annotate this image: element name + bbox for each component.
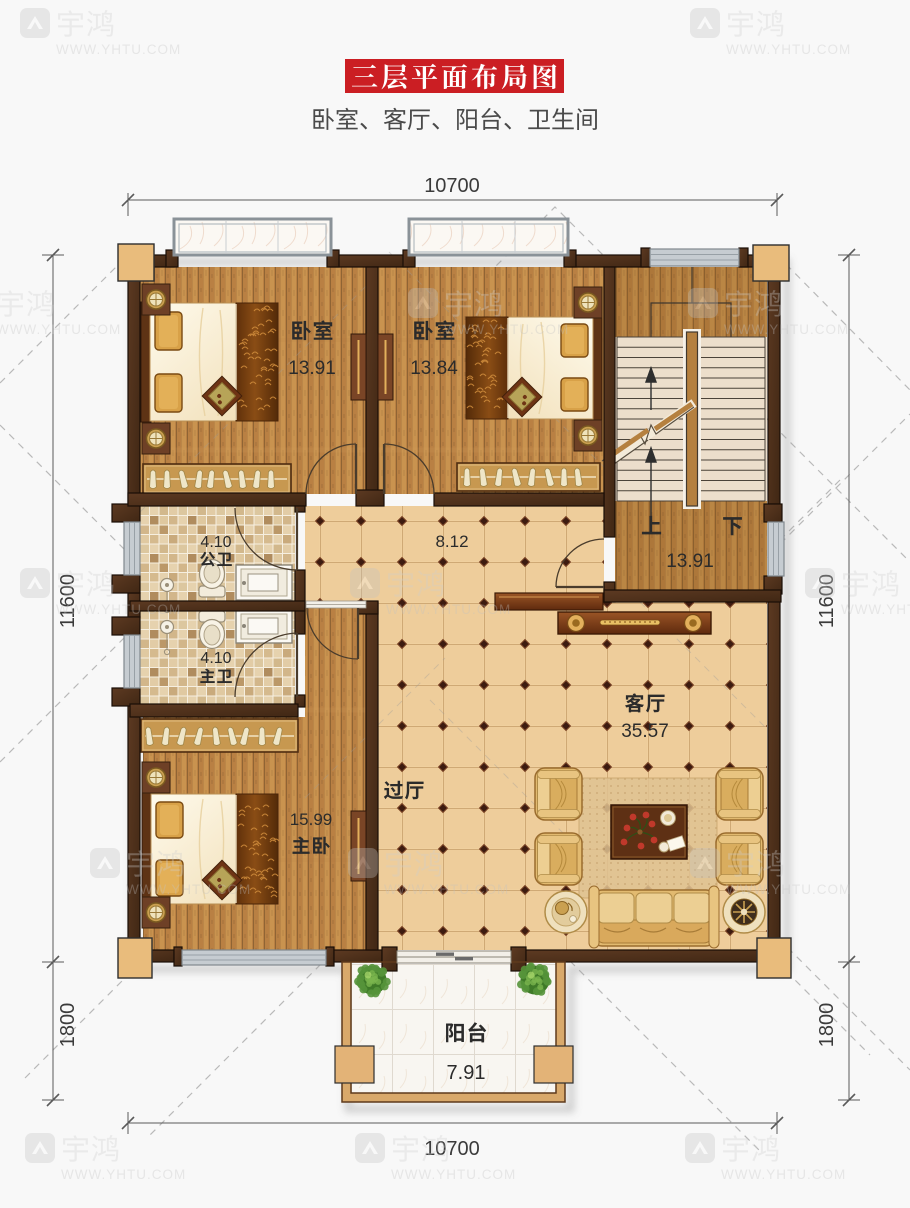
svg-text:WWW.YHTU.COM: WWW.YHTU.COM [444, 322, 569, 337]
svg-text:4.10: 4.10 [200, 534, 231, 551]
svg-text:WWW.YHTU.COM: WWW.YHTU.COM [841, 602, 910, 617]
svg-text:WWW.YHTU.COM: WWW.YHTU.COM [721, 1167, 846, 1182]
svg-text:WWW.YHTU.COM: WWW.YHTU.COM [391, 1167, 516, 1182]
svg-text:10700: 10700 [424, 175, 480, 197]
svg-text:1800: 1800 [57, 1003, 79, 1048]
svg-text:WWW.YHTU.COM: WWW.YHTU.COM [56, 42, 181, 57]
svg-text:WWW.YHTU.COM: WWW.YHTU.COM [384, 882, 509, 897]
svg-text:WWW.YHTU.COM: WWW.YHTU.COM [126, 882, 251, 897]
svg-text:1800: 1800 [816, 1003, 838, 1048]
svg-text:4.10: 4.10 [200, 650, 231, 667]
svg-text:WWW.YHTU.COM: WWW.YHTU.COM [724, 322, 849, 337]
svg-text:13.91: 13.91 [288, 358, 336, 379]
svg-text:WWW.YHTU.COM: WWW.YHTU.COM [726, 42, 851, 57]
svg-text:7.91: 7.91 [447, 1062, 486, 1084]
svg-text:15.99: 15.99 [290, 810, 333, 829]
svg-text:WWW.YHTU.COM: WWW.YHTU.COM [726, 882, 851, 897]
svg-text:13.84: 13.84 [410, 358, 458, 379]
svg-text:11600: 11600 [57, 574, 79, 628]
svg-text:8.12: 8.12 [435, 532, 468, 551]
svg-text:WWW.YHTU.COM: WWW.YHTU.COM [0, 322, 121, 337]
svg-text:13.91: 13.91 [666, 551, 714, 572]
svg-text:WWW.YHTU.COM: WWW.YHTU.COM [56, 602, 181, 617]
svg-text:WWW.YHTU.COM: WWW.YHTU.COM [61, 1167, 186, 1182]
svg-text:35.57: 35.57 [621, 721, 669, 742]
svg-text:WWW.YHTU.COM: WWW.YHTU.COM [386, 602, 511, 617]
